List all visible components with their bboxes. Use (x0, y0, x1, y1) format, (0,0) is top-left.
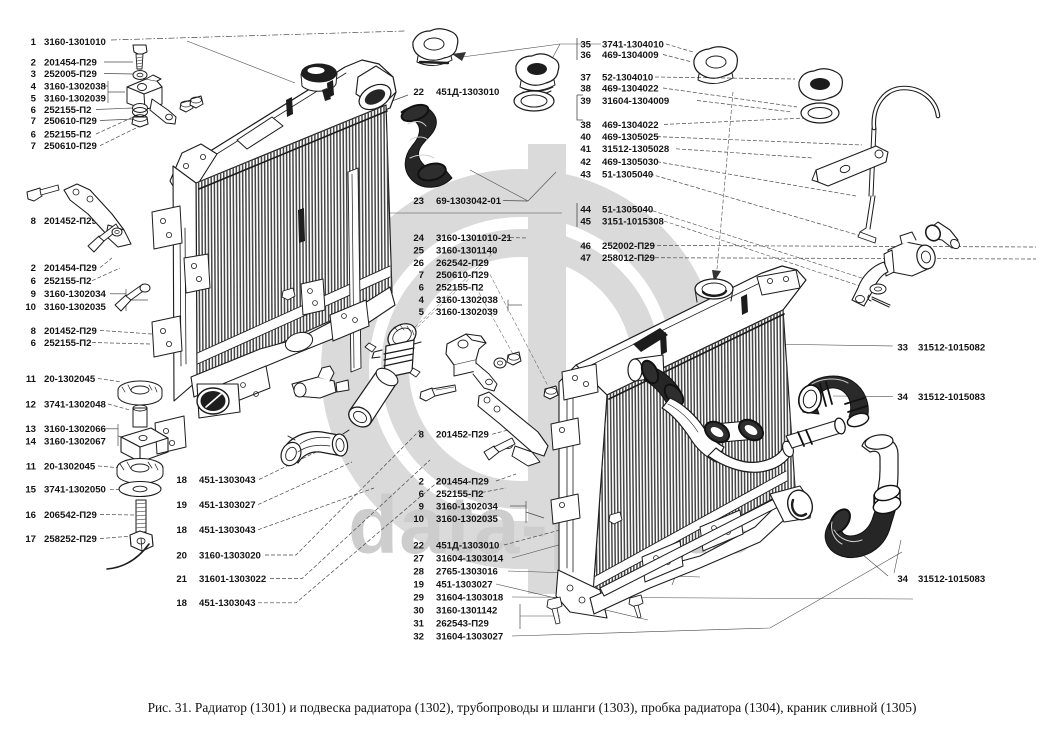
svg-text:3160-1302039: 3160-1302039 (436, 307, 498, 318)
svg-text:17: 17 (25, 534, 36, 545)
svg-text:23: 23 (413, 196, 424, 207)
svg-text:19: 19 (413, 579, 424, 590)
svg-text:262542-П29: 262542-П29 (436, 258, 489, 269)
svg-text:19: 19 (176, 500, 187, 511)
svg-text:6: 6 (419, 283, 424, 294)
svg-text:31604-1303014: 31604-1303014 (436, 553, 504, 564)
svg-text:201454-П29: 201454-П29 (44, 57, 97, 68)
svg-text:258252-П29: 258252-П29 (44, 534, 97, 545)
svg-text:46: 46 (580, 241, 591, 252)
svg-text:42: 42 (580, 157, 591, 168)
svg-text:250610-П29: 250610-П29 (436, 270, 489, 281)
svg-text:252155-П2: 252155-П2 (436, 283, 483, 294)
svg-text:10: 10 (413, 514, 424, 525)
svg-text:31512-1015082: 31512-1015082 (918, 342, 985, 353)
svg-text:9: 9 (419, 501, 424, 512)
svg-text:252002-П29: 252002-П29 (602, 241, 655, 252)
svg-text:25: 25 (413, 245, 424, 256)
svg-text:258012-П29: 258012-П29 (602, 253, 655, 264)
svg-text:3160-1302035: 3160-1302035 (436, 514, 499, 525)
svg-text:3741-1302050: 3741-1302050 (44, 485, 106, 496)
svg-text:45: 45 (580, 216, 591, 227)
svg-text:451Д-1303010: 451Д-1303010 (436, 87, 499, 98)
svg-text:3741-1302048: 3741-1302048 (44, 399, 107, 410)
svg-text:31512-1015083: 31512-1015083 (918, 392, 985, 403)
svg-text:469-1304009: 469-1304009 (602, 50, 659, 61)
svg-text:3160-1302067: 3160-1302067 (44, 436, 106, 447)
svg-text:41: 41 (580, 144, 591, 155)
svg-text:69-1303042-01: 69-1303042-01 (436, 196, 502, 207)
svg-text:5: 5 (419, 307, 425, 318)
svg-text:Рис. 31. Радиатор (1301) и под: Рис. 31. Радиатор (1301) и подвеска ради… (148, 700, 917, 715)
svg-text:20: 20 (176, 550, 187, 561)
svg-text:451-1303043: 451-1303043 (199, 475, 256, 486)
svg-text:34: 34 (897, 574, 908, 585)
svg-text:36: 36 (580, 50, 591, 61)
svg-text:18: 18 (176, 598, 187, 609)
svg-text:31604-1304009: 31604-1304009 (602, 96, 669, 107)
svg-text:250610-П29: 250610-П29 (44, 116, 97, 127)
svg-text:1: 1 (31, 37, 37, 48)
svg-text:38: 38 (580, 120, 591, 131)
svg-text:24: 24 (413, 233, 424, 244)
svg-text:31: 31 (413, 618, 424, 629)
svg-text:451Д-1303010: 451Д-1303010 (436, 540, 499, 551)
svg-text:451-1303027: 451-1303027 (436, 579, 493, 590)
svg-text:21: 21 (176, 574, 187, 585)
svg-text:7: 7 (31, 141, 36, 152)
svg-text:30: 30 (413, 605, 424, 616)
svg-text:3160-1302038: 3160-1302038 (436, 295, 499, 306)
svg-text:451-1303043: 451-1303043 (199, 525, 256, 536)
svg-text:3160-1302034: 3160-1302034 (436, 501, 499, 512)
svg-text:8: 8 (419, 430, 425, 441)
svg-text:11: 11 (26, 461, 37, 472)
svg-text:201454-П29: 201454-П29 (44, 263, 97, 274)
svg-text:22: 22 (413, 540, 424, 551)
svg-text:20-1302045: 20-1302045 (44, 461, 96, 472)
svg-text:201452-П29: 201452-П29 (436, 430, 489, 441)
svg-text:37: 37 (580, 72, 591, 83)
svg-text:6: 6 (31, 276, 36, 287)
svg-text:469-1304022: 469-1304022 (602, 83, 659, 94)
svg-text:40: 40 (580, 132, 591, 143)
svg-text:3160-1303020: 3160-1303020 (199, 550, 261, 561)
svg-text:32: 32 (413, 631, 424, 642)
svg-text:38: 38 (580, 83, 591, 94)
svg-text:3160-1302038: 3160-1302038 (44, 81, 107, 92)
svg-text:3160-1302039: 3160-1302039 (44, 93, 106, 104)
svg-text:250610-П29: 250610-П29 (44, 141, 97, 152)
svg-text:44: 44 (580, 204, 591, 215)
svg-text:3741-1304010: 3741-1304010 (602, 39, 664, 50)
svg-text:6: 6 (419, 489, 424, 500)
svg-text:52-1304010: 52-1304010 (602, 72, 653, 83)
svg-text:33: 33 (897, 342, 908, 353)
svg-text:4: 4 (419, 295, 425, 306)
svg-text:451-1303027: 451-1303027 (199, 500, 256, 511)
svg-text:22: 22 (413, 87, 424, 98)
svg-text:28: 28 (413, 566, 424, 577)
svg-text:7: 7 (31, 116, 36, 127)
svg-text:3160-1301010-21: 3160-1301010-21 (436, 233, 512, 244)
svg-text:469-1304022: 469-1304022 (602, 120, 659, 131)
svg-text:13: 13 (25, 424, 36, 435)
svg-text:2: 2 (31, 263, 36, 274)
svg-text:201454-П29: 201454-П29 (436, 476, 489, 487)
svg-text:252155-П2: 252155-П2 (44, 105, 91, 116)
svg-text:3151-1015308: 3151-1015308 (602, 216, 665, 227)
svg-text:3160-1301010: 3160-1301010 (44, 37, 106, 48)
svg-text:3160-1302035: 3160-1302035 (44, 302, 107, 313)
svg-text:6: 6 (31, 129, 36, 140)
svg-text:31604-1303027: 31604-1303027 (436, 631, 503, 642)
svg-text:3160-1302066: 3160-1302066 (44, 424, 106, 435)
svg-text:31512-1305028: 31512-1305028 (602, 144, 670, 155)
svg-text:8: 8 (31, 326, 37, 337)
svg-text:34: 34 (897, 392, 908, 403)
svg-text:262543-П29: 262543-П29 (436, 618, 489, 629)
svg-text:31604-1303018: 31604-1303018 (436, 592, 504, 603)
svg-text:15: 15 (25, 485, 36, 496)
svg-text:469-1305030: 469-1305030 (602, 157, 659, 168)
svg-text:3160-1302034: 3160-1302034 (44, 289, 107, 300)
svg-text:8: 8 (31, 216, 37, 227)
svg-text:31512-1015083: 31512-1015083 (918, 574, 985, 585)
svg-text:29: 29 (413, 592, 424, 603)
svg-text:201452-П29: 201452-П29 (44, 326, 97, 337)
svg-text:14: 14 (25, 436, 36, 447)
svg-text:252155-П2: 252155-П2 (44, 129, 91, 140)
svg-text:3160-1301142: 3160-1301142 (436, 605, 497, 616)
svg-text:2: 2 (31, 57, 36, 68)
svg-text:252155-П2: 252155-П2 (436, 489, 483, 500)
svg-text:31601-1303022: 31601-1303022 (199, 574, 266, 585)
svg-text:18: 18 (176, 525, 187, 536)
svg-text:20-1302045: 20-1302045 (44, 374, 96, 385)
svg-text:469-1305025: 469-1305025 (602, 132, 659, 143)
svg-text:18: 18 (176, 475, 187, 486)
svg-text:26: 26 (413, 258, 424, 269)
svg-text:206542-П29: 206542-П29 (44, 510, 97, 521)
svg-text:16: 16 (25, 510, 36, 521)
svg-text:35: 35 (580, 39, 591, 50)
svg-text:201452-П29: 201452-П29 (44, 216, 97, 227)
svg-text:51-1305040: 51-1305040 (602, 169, 653, 180)
svg-text:43: 43 (580, 169, 591, 180)
svg-text:2: 2 (419, 476, 424, 487)
svg-text:7: 7 (419, 270, 424, 281)
svg-text:451-1303043: 451-1303043 (199, 598, 256, 609)
svg-text:5: 5 (31, 93, 37, 104)
svg-text:2765-1303016: 2765-1303016 (436, 566, 498, 577)
svg-text:252005-П29: 252005-П29 (44, 69, 97, 80)
svg-text:252155-П2: 252155-П2 (44, 276, 91, 287)
svg-text:4: 4 (31, 81, 37, 92)
svg-text:11: 11 (26, 374, 37, 385)
svg-text:6: 6 (31, 105, 36, 116)
svg-text:252155-П2: 252155-П2 (44, 338, 91, 349)
svg-text:12: 12 (25, 399, 36, 410)
svg-text:3160-1301140: 3160-1301140 (436, 245, 497, 256)
svg-text:51-1305040: 51-1305040 (602, 204, 653, 215)
svg-text:3: 3 (31, 69, 36, 80)
svg-text:10: 10 (25, 302, 36, 313)
svg-text:27: 27 (413, 553, 424, 564)
svg-text:47: 47 (580, 253, 591, 264)
svg-text:6: 6 (31, 338, 36, 349)
svg-text:39: 39 (580, 96, 591, 107)
svg-text:9: 9 (31, 289, 36, 300)
